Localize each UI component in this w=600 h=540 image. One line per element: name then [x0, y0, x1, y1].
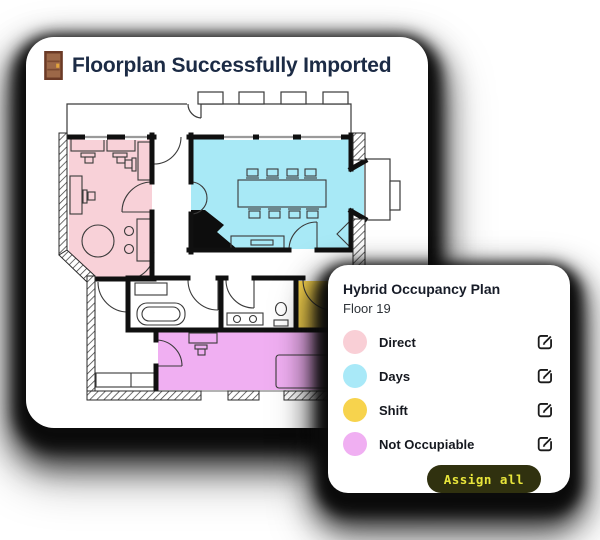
chimney: [239, 92, 264, 104]
edit-days-button[interactable]: [536, 367, 554, 385]
occupancy-panel: Hybrid Occupancy Plan Floor 19 Direct Da…: [328, 265, 570, 493]
edit-not-occupiable-button[interactable]: [536, 435, 554, 453]
panel-title: Hybrid Occupancy Plan: [343, 281, 554, 297]
room-direct: [69, 137, 152, 277]
edit-direct-button[interactable]: [536, 333, 554, 351]
legend-row-shift: Shift: [343, 398, 554, 422]
legend-label: Not Occupiable: [379, 437, 536, 452]
room-not-occupiable: [158, 332, 346, 390]
not-occupiable-color-swatch: [343, 432, 367, 456]
chimney: [323, 92, 348, 104]
shift-color-swatch: [343, 398, 367, 422]
bay-window-bump: [390, 181, 400, 210]
rooms: [69, 137, 364, 390]
legend-row-days: Days: [343, 364, 554, 388]
toilet: [276, 303, 287, 316]
card-header: Floorplan Successfully Imported: [26, 37, 428, 80]
pencil-square-icon: [536, 401, 554, 419]
pencil-square-icon: [536, 367, 554, 385]
page-title: Floorplan Successfully Imported: [72, 54, 391, 78]
sink-counter: [227, 313, 263, 325]
edit-shift-button[interactable]: [536, 401, 554, 419]
chimney: [198, 92, 223, 104]
pencil-square-icon: [536, 435, 554, 453]
assign-all-button[interactable]: Assign all: [427, 465, 541, 493]
legend-row-not-occupiable: Not Occupiable: [343, 432, 554, 456]
chimney: [281, 92, 306, 104]
legend-row-direct: Direct: [343, 330, 554, 354]
shelf: [135, 283, 167, 295]
bay-window: [365, 159, 390, 220]
door-icon: [44, 51, 63, 80]
days-color-swatch: [343, 364, 367, 388]
direct-color-swatch: [343, 330, 367, 354]
panel-subtitle: Floor 19: [343, 301, 554, 316]
closet: [96, 373, 156, 387]
legend-label: Direct: [379, 335, 536, 350]
bathtub: [137, 303, 185, 325]
legend-label: Days: [379, 369, 536, 384]
pencil-square-icon: [536, 333, 554, 351]
legend-label: Shift: [379, 403, 536, 418]
